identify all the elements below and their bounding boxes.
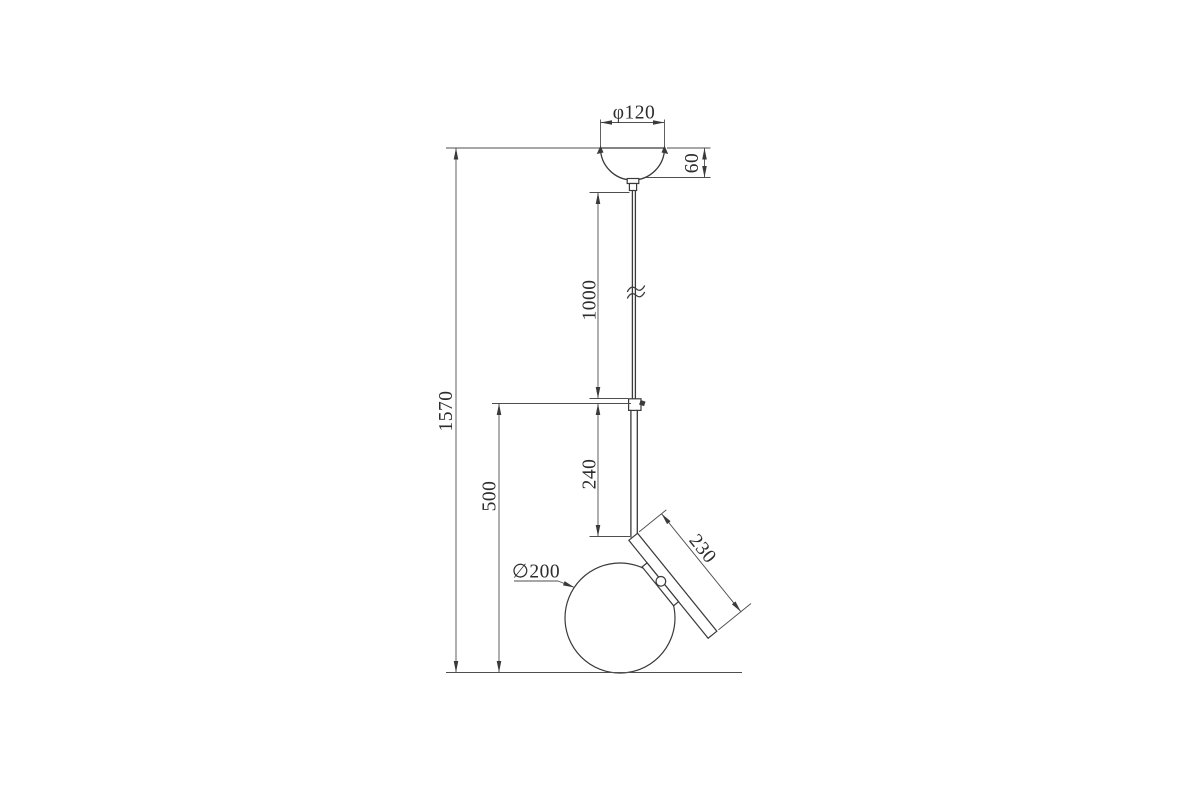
dim-label-rod-length: 240 <box>580 459 601 490</box>
dim-canopy-height: 60 <box>646 148 711 178</box>
dim-lower-section: 500 <box>480 404 501 673</box>
drawing-canvas: φ120 60 1000 240 1570 <box>0 0 1200 800</box>
lamp-rod <box>631 410 637 537</box>
dim-globe-diameter: ∅200 <box>512 562 575 588</box>
canopy-dome-arc <box>601 148 665 180</box>
dim-label-canopy-height: 60 <box>682 153 703 174</box>
cable-rod-connector <box>629 399 646 411</box>
suspension-cable <box>628 191 645 399</box>
dim-rod-length: 240 <box>580 404 631 537</box>
extension-line <box>639 510 666 532</box>
leader-line <box>558 581 575 588</box>
dim-label-canopy-diameter: φ120 <box>613 103 656 124</box>
dim-label-globe-diameter: ∅200 <box>512 562 560 583</box>
canopy-rim-left <box>597 146 604 155</box>
dim-label-lower-section: 500 <box>480 481 501 512</box>
dim-cable-length: 1000 <box>580 193 630 399</box>
dim-canopy-diameter: φ120 <box>601 103 665 147</box>
lamp-canopy <box>597 146 668 191</box>
dim-label-total-height: 1570 <box>436 391 457 432</box>
dim-label-arm-length: 230 <box>684 530 720 567</box>
pendant-lamp-technical-drawing: φ120 60 1000 240 1570 <box>0 0 1200 800</box>
canopy-collar <box>627 179 639 184</box>
canopy-rim-right <box>662 146 669 155</box>
dim-label-cable-length: 1000 <box>580 280 601 321</box>
canopy-stem <box>629 184 636 191</box>
extension-line <box>718 604 751 630</box>
connector-body <box>629 399 641 411</box>
